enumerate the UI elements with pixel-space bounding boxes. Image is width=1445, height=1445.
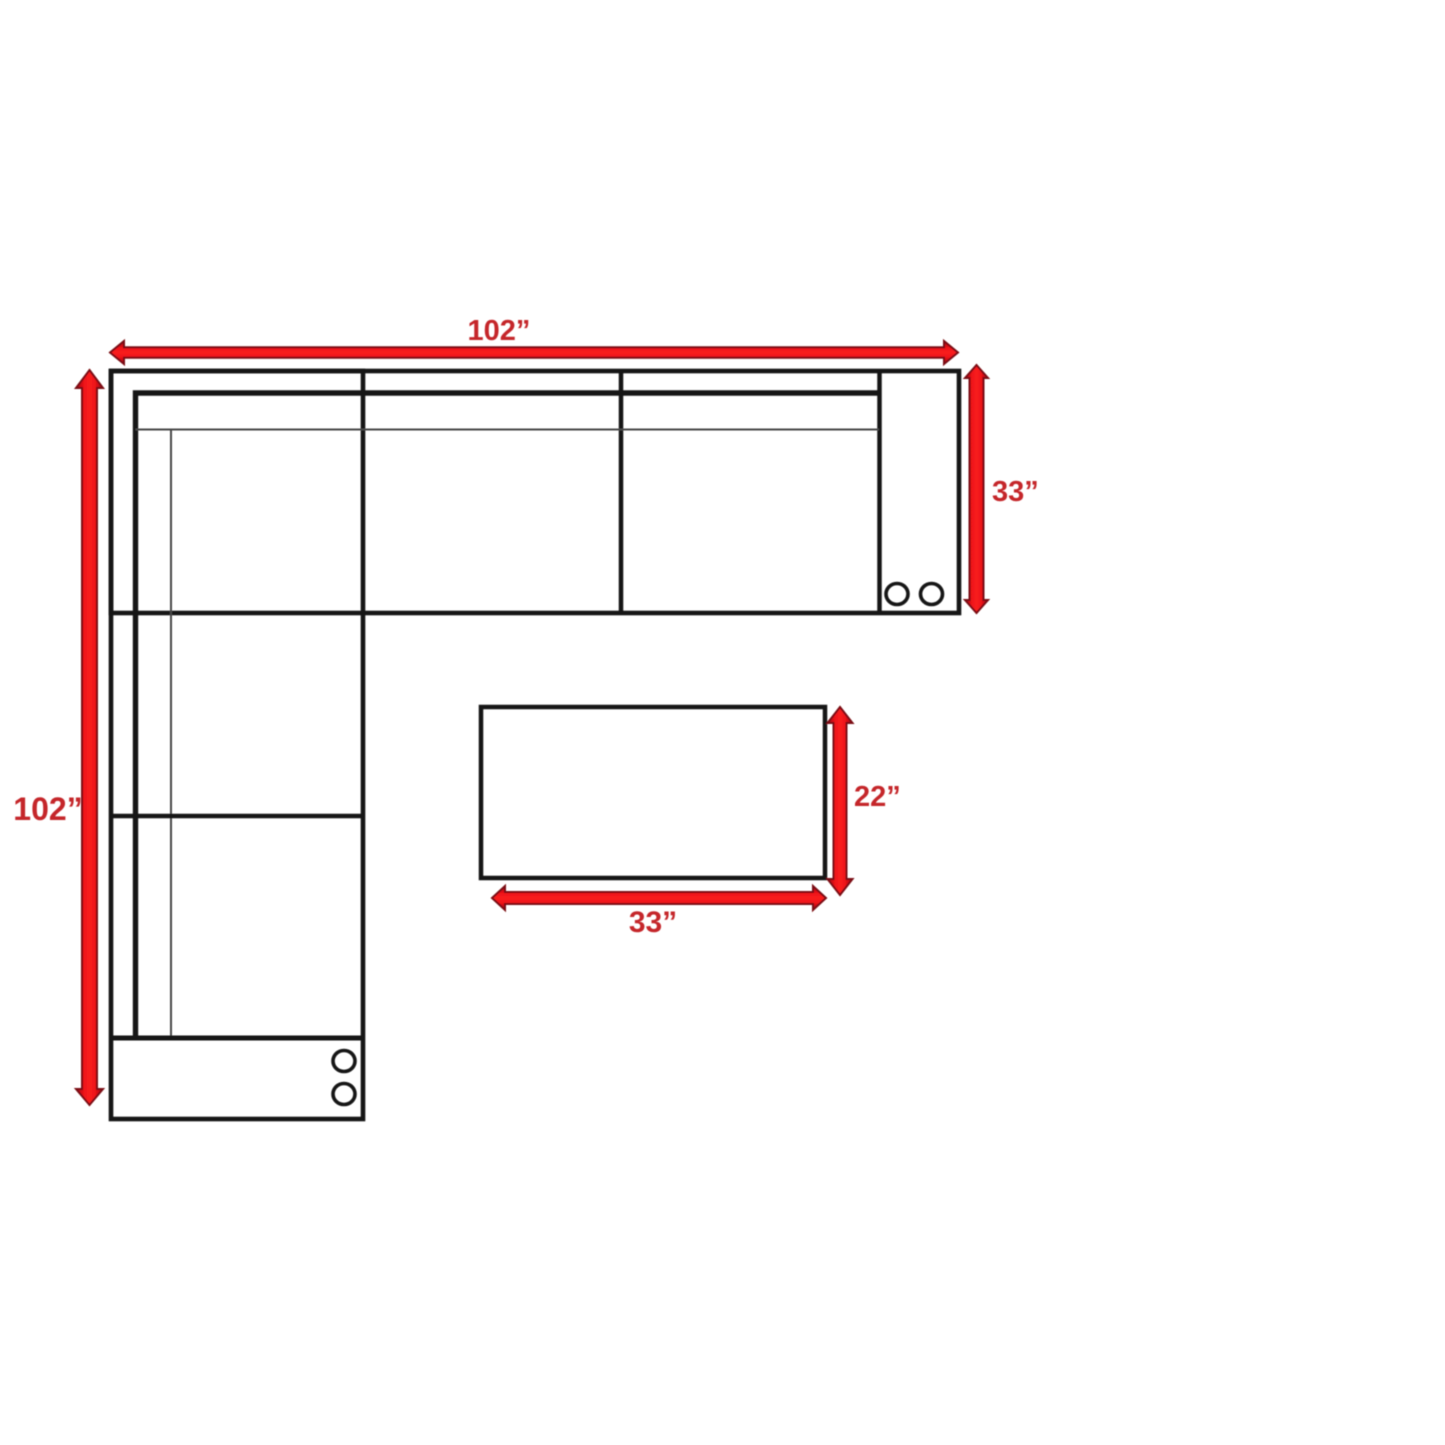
svg-text:22”: 22” [854,781,901,813]
svg-text:33”: 33” [992,476,1039,508]
svg-text:33”: 33” [629,906,677,939]
svg-text:102”: 102” [468,315,531,347]
svg-text:102”: 102” [13,791,82,827]
